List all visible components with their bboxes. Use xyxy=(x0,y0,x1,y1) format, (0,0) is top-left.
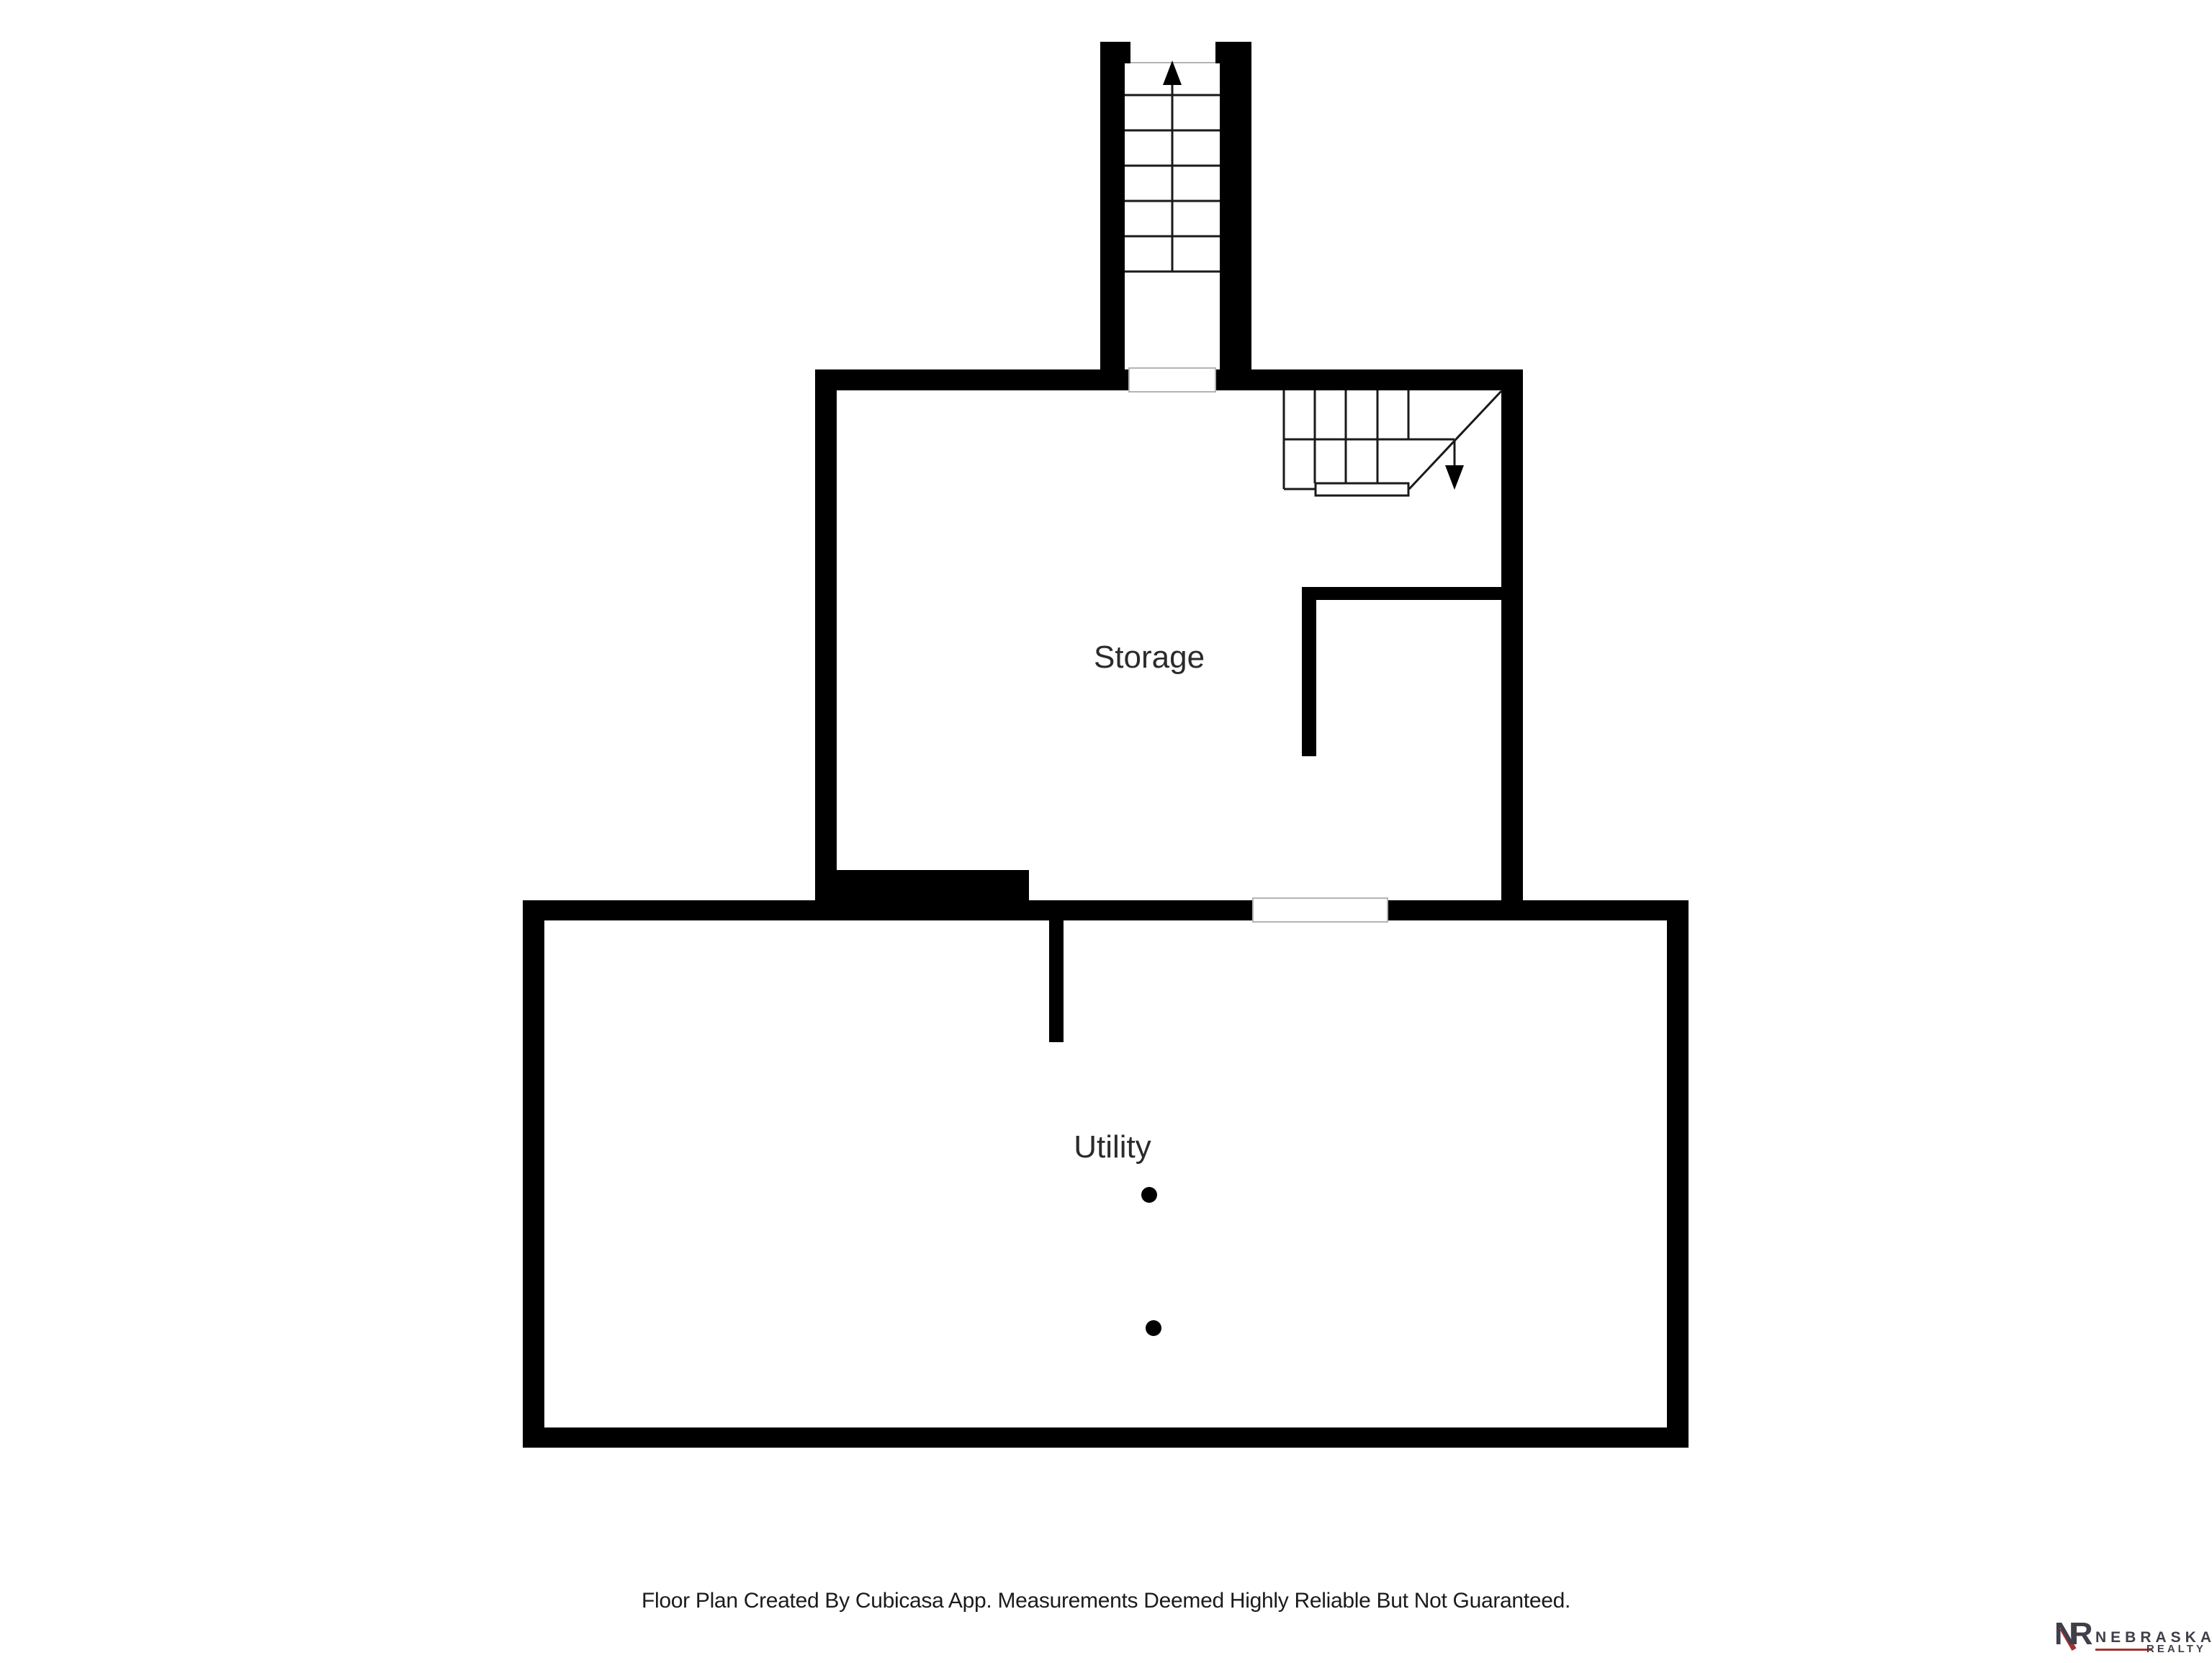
utility-doorway xyxy=(1253,898,1388,922)
stair-treads-up xyxy=(1125,82,1220,272)
utility-room-label: Utility xyxy=(1074,1129,1151,1165)
storage-stair-doorway xyxy=(1129,368,1215,392)
floor-plan: Storage Utility xyxy=(0,0,2212,1659)
stairwell-left-wall xyxy=(1100,42,1125,369)
logo-monogram: NR xyxy=(2054,1616,2086,1652)
storage-right-wall xyxy=(1501,369,1523,902)
stairwell-right-wall xyxy=(1220,42,1251,369)
utility-room xyxy=(523,898,1689,1448)
stairwell-top-left-stub xyxy=(1100,42,1130,63)
storage-room xyxy=(815,368,1523,902)
stairs-down xyxy=(1284,390,1501,496)
support-post-dot xyxy=(1141,1187,1157,1203)
utility-top-wall xyxy=(523,900,1689,920)
stair-landing xyxy=(1316,483,1408,496)
utility-bottom-wall xyxy=(523,1427,1689,1448)
storage-room-label: Storage xyxy=(1094,640,1205,675)
storage-alcove-left-wall xyxy=(1302,587,1316,756)
logo-red-rule xyxy=(2095,1649,2152,1651)
up-arrow-icon xyxy=(1163,60,1182,85)
storage-left-wall xyxy=(815,369,837,902)
utility-partition-wall xyxy=(1049,917,1064,1042)
footer-disclaimer: Floor Plan Created By Cubicasa App. Meas… xyxy=(0,1589,2212,1613)
storage-alcove-top-wall xyxy=(1302,587,1501,600)
floor-plan-drawing: Storage Utility xyxy=(0,0,2212,1659)
utility-right-wall xyxy=(1667,900,1689,1448)
logo-subname-text: REALTY xyxy=(2146,1643,2206,1655)
stairwell-up xyxy=(1100,42,1251,369)
nebraska-realty-logo: NR NEBRASKA REALTY xyxy=(2054,1621,2208,1657)
support-post-dot xyxy=(1146,1320,1161,1336)
down-arrow-icon xyxy=(1445,465,1464,490)
utility-left-wall xyxy=(523,900,544,1448)
stairwell-top-right-stub xyxy=(1215,42,1251,63)
storage-thick-wall-section xyxy=(815,870,1029,902)
